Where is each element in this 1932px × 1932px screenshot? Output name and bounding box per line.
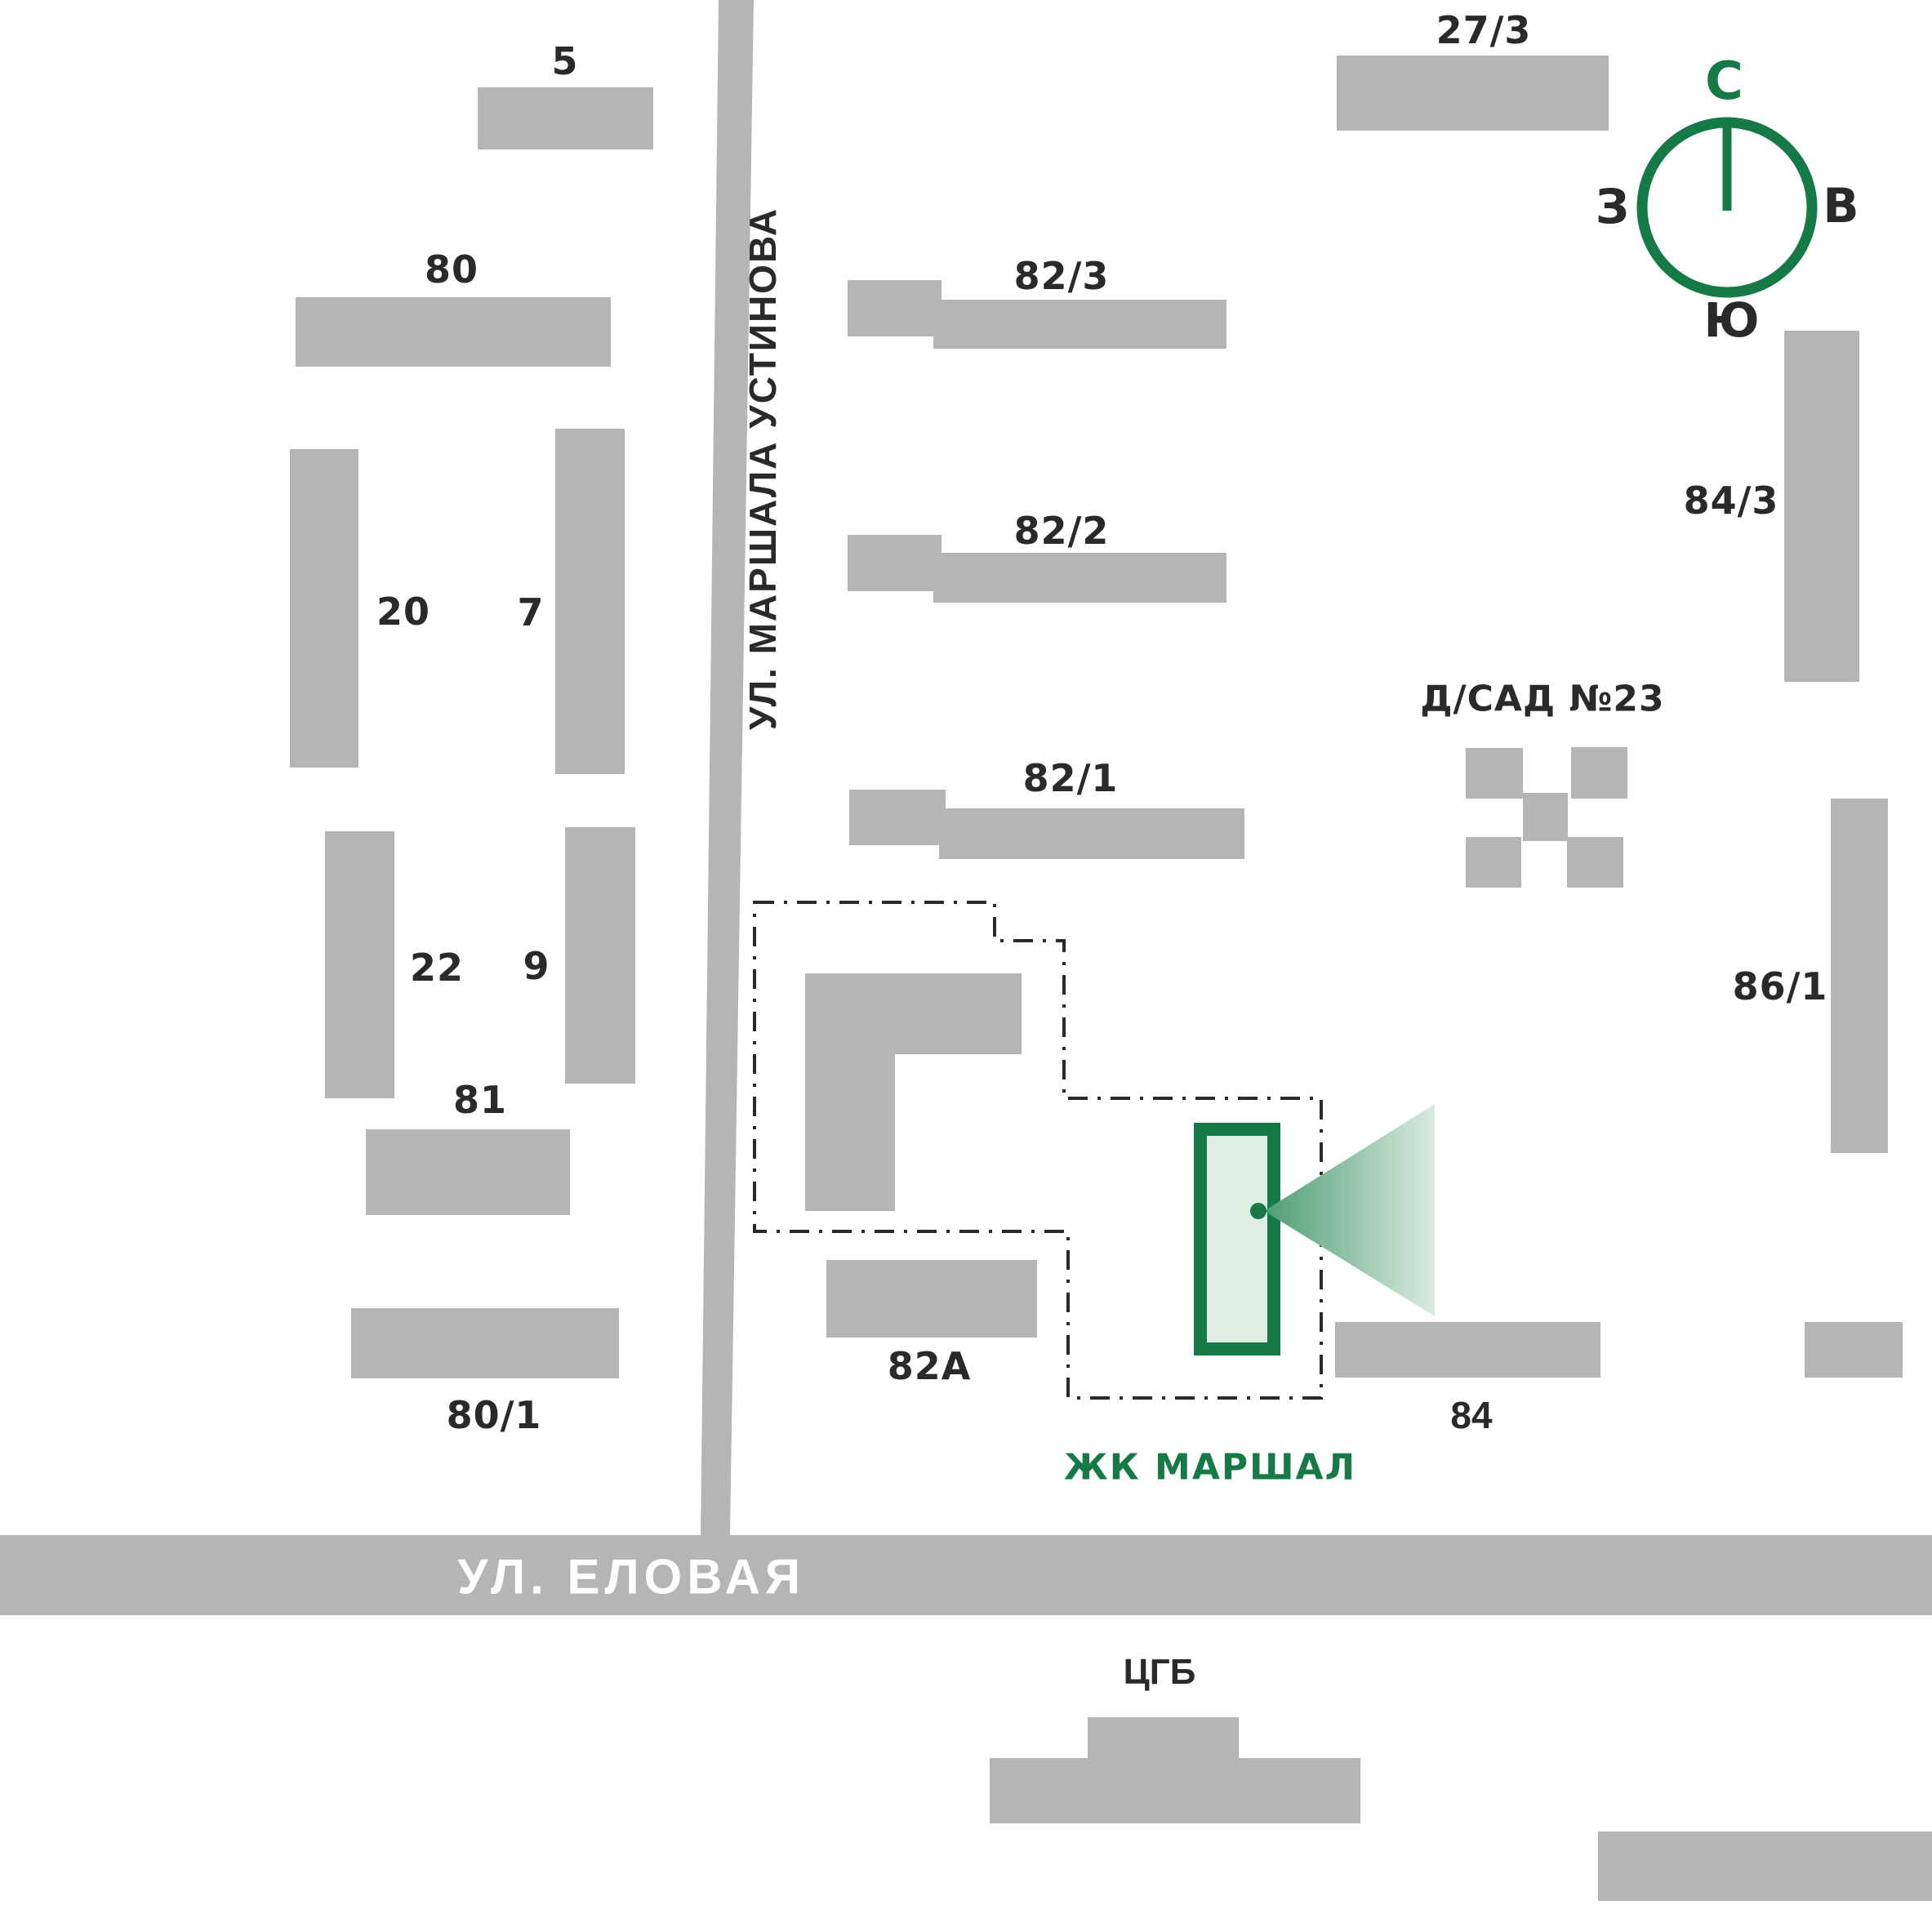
road-yelovaya (0, 1535, 1932, 1615)
compass-north-label: С (1705, 51, 1744, 112)
building-84-3 (1784, 331, 1859, 682)
label-building-80: 80 (425, 247, 479, 292)
building-84-annex (1805, 1322, 1903, 1378)
building-bottom-right (1598, 1832, 1932, 1901)
label-building-82a: 82А (888, 1344, 972, 1388)
building-l-shaped (805, 973, 1022, 1211)
building-9 (565, 827, 635, 1084)
label-building-81: 81 (453, 1078, 507, 1122)
label-building-9: 9 (523, 944, 550, 988)
building-zhk-marshal (1200, 1129, 1274, 1349)
label-building-82-1: 82/1 (1023, 756, 1119, 800)
label-building-82-3: 82/3 (1014, 254, 1110, 298)
kindergarten-block-center (1523, 793, 1568, 841)
building-82-2-block (848, 535, 942, 591)
label-building-20: 20 (376, 590, 430, 634)
building-86-1 (1831, 799, 1888, 1153)
building-82-1-block (849, 790, 946, 845)
view-point-dot (1250, 1203, 1266, 1219)
building-22 (325, 831, 394, 1098)
building-82-2-bar (933, 553, 1226, 603)
view-cone (1264, 1104, 1435, 1316)
label-street-horizontal: УЛ. ЕЛОВАЯ (457, 1549, 805, 1605)
label-building-22: 22 (410, 946, 464, 990)
label-building-82-2: 82/2 (1014, 509, 1110, 553)
label-building-5: 5 (551, 39, 578, 83)
building-82-3-bar (933, 300, 1226, 349)
building-80-1 (351, 1308, 619, 1378)
building-5 (478, 87, 653, 149)
label-street-vertical: УЛ. МАРШАЛА УСТИНОВА (741, 207, 785, 730)
compass-east-label: В (1823, 178, 1859, 234)
label-kindergarten: Д/САД №23 (1420, 679, 1664, 720)
hospital-block-bottom (990, 1758, 1360, 1823)
compass-west-label: З (1596, 179, 1630, 234)
label-building-27-3: 27/3 (1436, 8, 1532, 52)
kindergarten-block-br (1567, 837, 1623, 888)
kindergarten-block-bl (1466, 837, 1521, 888)
label-complex-name: ЖК МАРШАЛ (1064, 1447, 1356, 1489)
kindergarten-block-tr (1571, 747, 1627, 799)
building-80 (296, 297, 611, 367)
building-20 (290, 449, 358, 768)
building-27-3 (1337, 56, 1609, 131)
building-82-3-block (848, 280, 942, 336)
compass-south-label: Ю (1703, 292, 1760, 348)
label-hospital: ЦГБ (1124, 1652, 1196, 1693)
building-84 (1335, 1322, 1600, 1378)
label-building-80-1: 80/1 (447, 1393, 542, 1437)
building-81 (366, 1129, 570, 1215)
building-7 (555, 429, 625, 774)
label-building-7: 7 (517, 590, 544, 634)
map-canvas (0, 0, 1932, 1932)
label-building-84-3: 84/3 (1684, 479, 1779, 523)
kindergarten-block-tl (1466, 748, 1523, 799)
site-map: 5 80 20 7 22 9 81 80/1 82/3 82/2 82/1 27… (0, 0, 1932, 1932)
building-82a (826, 1260, 1037, 1338)
building-82-1-bar (939, 808, 1244, 859)
label-building-84: 84 (1450, 1393, 1492, 1437)
label-building-86-1: 86/1 (1733, 964, 1828, 1008)
hospital-block-top (1088, 1717, 1239, 1758)
